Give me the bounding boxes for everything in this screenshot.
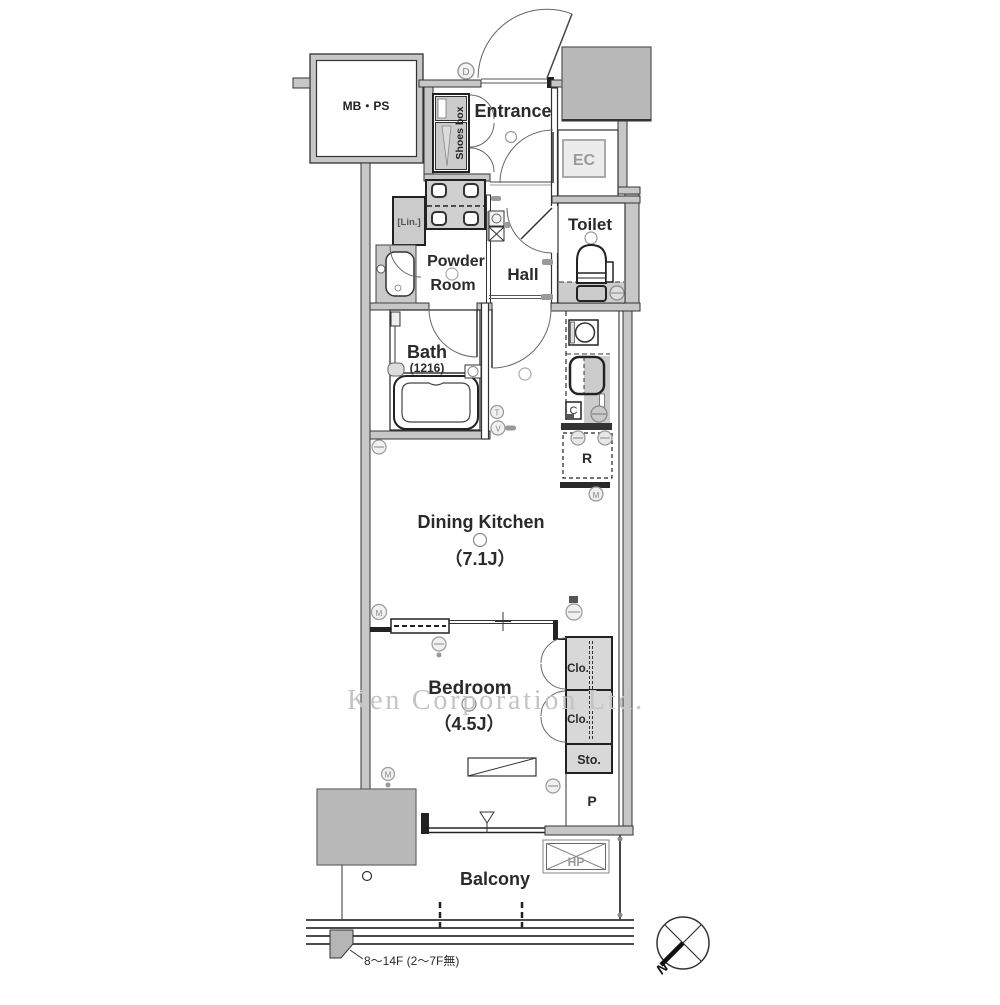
svg-text:MB・PS: MB・PS [343,99,390,113]
svg-text:Entrance: Entrance [474,101,551,121]
svg-text:M: M [385,771,392,780]
svg-text:R: R [582,450,592,466]
svg-text:Hall: Hall [507,265,538,284]
svg-text:Powder: Powder [427,253,485,270]
svg-text:（7.1J）: （7.1J） [444,549,515,569]
svg-text:8～14F (2～7F無): 8～14F (2～7F無) [364,953,459,968]
svg-text:[Lin.]: [Lin.] [397,217,420,228]
svg-text:P: P [587,793,596,809]
svg-text:Shoes box: Shoes box [454,106,466,159]
svg-text:Ken Corporation Ltd.: Ken Corporation Ltd. [347,685,645,716]
svg-text:T: T [495,409,500,418]
svg-text:M: M [593,491,600,500]
svg-text:（4.5J）: （4.5J） [433,714,504,734]
svg-text:Clo.: Clo. [567,663,589,675]
svg-text:EC: EC [573,152,596,169]
svg-text:Bath: Bath [407,342,447,362]
svg-text:V: V [495,425,501,434]
svg-text:D: D [462,67,469,78]
svg-text:M: M [376,609,383,618]
svg-text:(1216): (1216) [410,361,445,375]
svg-text:Toilet: Toilet [568,215,612,234]
svg-text:Balcony: Balcony [460,869,530,889]
svg-text:HP: HP [568,855,585,869]
svg-text:Dining Kitchen: Dining Kitchen [418,512,545,532]
svg-text:Sto.: Sto. [577,753,601,767]
